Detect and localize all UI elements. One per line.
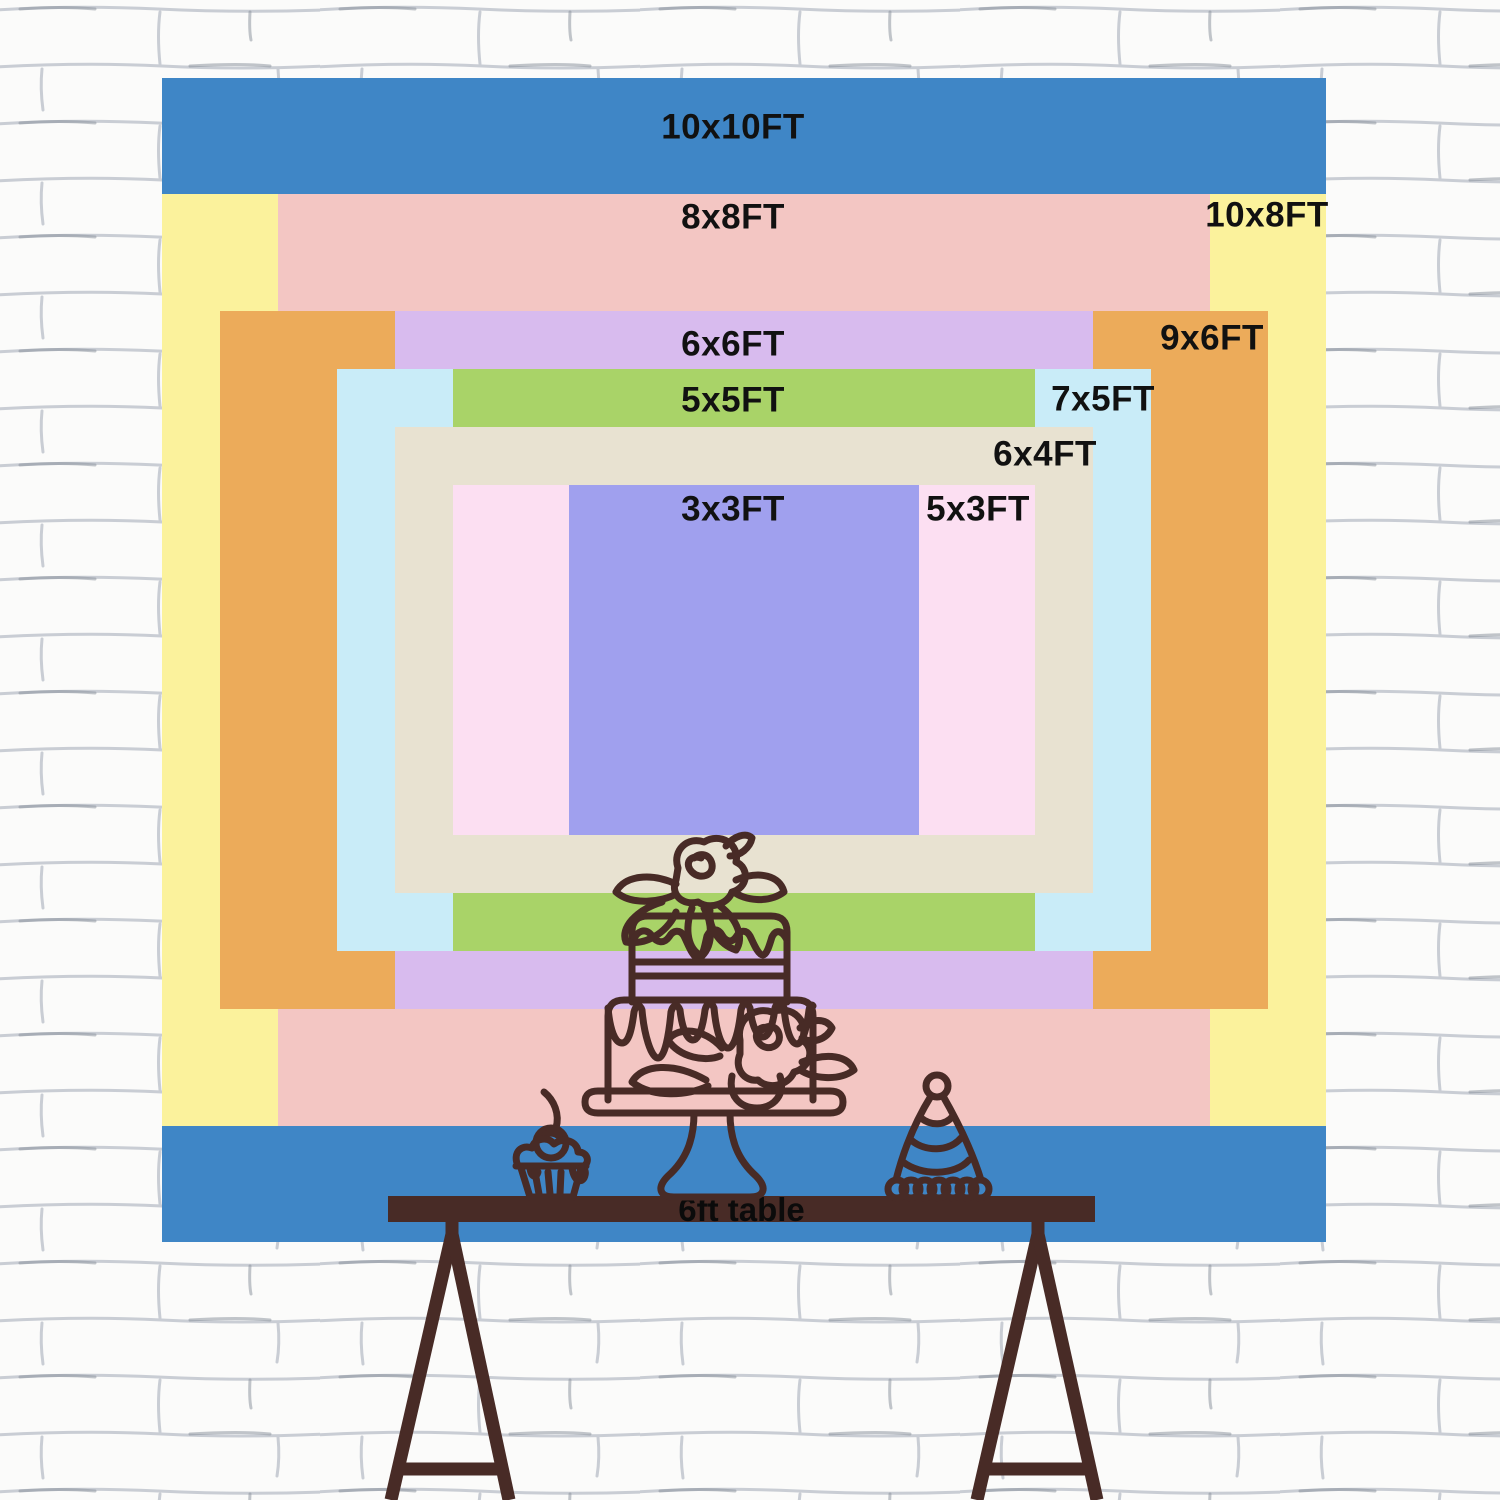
size-label-10x8: 10x8FT: [1205, 198, 1329, 233]
backdrop-size-chart-scene: 10x10FT8x8FT10x8FT6x6FT9x6FT5x5FT7x5FT6x…: [0, 0, 1500, 1500]
table-bar: 6ft table: [388, 1196, 1095, 1222]
size-label-8x8: 8x8FT: [681, 200, 785, 235]
size-label-5x5: 5x5FT: [681, 383, 785, 418]
size-label-3x3: 3x3FT: [681, 492, 785, 527]
size-label-6x6: 6x6FT: [681, 327, 785, 362]
size-label-7x5: 7x5FT: [1051, 382, 1155, 417]
size-rect-3x3: [569, 485, 918, 834]
size-label-6x4: 6x4FT: [993, 437, 1097, 472]
size-label-9x6: 9x6FT: [1160, 321, 1264, 356]
nested-size-rectangles: 10x10FT8x8FT10x8FT6x6FT9x6FT5x5FT7x5FT6x…: [162, 78, 1326, 1242]
table-label: 6ft table: [678, 1193, 805, 1226]
size-label-10x10: 10x10FT: [661, 110, 805, 145]
size-label-5x3: 5x3FT: [926, 492, 1030, 527]
